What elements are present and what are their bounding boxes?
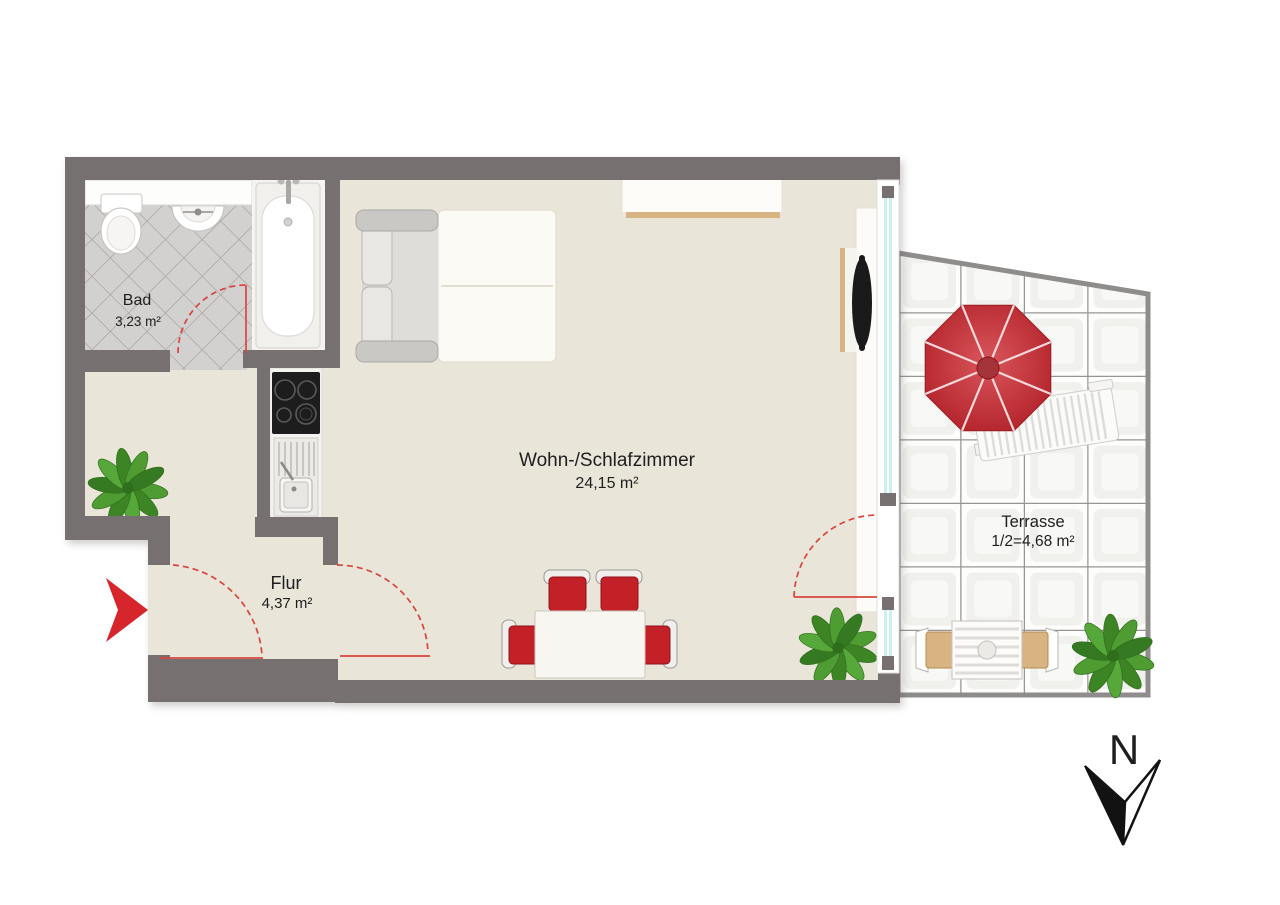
room-label-wohnzimmer: Wohn-/Schlafzimmer bbox=[519, 450, 696, 471]
room-area-wohnzimmer: 24,15 m² bbox=[575, 475, 639, 492]
dining-chair bbox=[596, 570, 642, 611]
north-label: N bbox=[1109, 726, 1139, 773]
room-area-terrasse: 1/2=4,68 m² bbox=[991, 533, 1074, 550]
room-area-bad: 3,23 m² bbox=[115, 314, 161, 329]
room-label-bad: Bad bbox=[123, 292, 151, 309]
toilet-icon bbox=[101, 194, 142, 254]
room-area-flur: 4,37 m² bbox=[262, 595, 313, 612]
parasol-icon bbox=[925, 305, 1051, 431]
terrace-table bbox=[952, 621, 1022, 679]
kitchenette bbox=[270, 368, 322, 518]
dining-table bbox=[535, 611, 645, 678]
entrance-arrow-icon bbox=[106, 578, 148, 642]
sofa-bed-icon bbox=[356, 210, 556, 362]
terrace-chair-left bbox=[916, 628, 953, 672]
cooktop-icon bbox=[272, 372, 320, 434]
wardrobe-icon bbox=[622, 176, 782, 218]
room-label-terrasse: Terrasse bbox=[1001, 513, 1064, 531]
bathtub-icon bbox=[256, 178, 320, 349]
apartment: Bad 3,23 m² Flur 4,37 m² Wohn-/Schlafzim… bbox=[65, 157, 900, 703]
room-label-flur: Flur bbox=[271, 573, 302, 593]
terrace: Terrasse 1/2=4,68 m² bbox=[898, 253, 1164, 707]
door-jamb bbox=[880, 493, 896, 506]
floor-plan-drawing: Terrasse 1/2=4,68 m² bbox=[0, 0, 1280, 905]
north-arrow-icon: N bbox=[1085, 726, 1160, 845]
bathroom-door-threshold bbox=[170, 350, 247, 370]
window-band bbox=[877, 180, 899, 673]
dining-chair bbox=[544, 570, 590, 611]
kitchen-sink-icon bbox=[274, 438, 318, 516]
terrace-chair-right bbox=[1021, 628, 1058, 672]
floor-plan: Terrasse 1/2=4,68 m² bbox=[0, 0, 1280, 905]
